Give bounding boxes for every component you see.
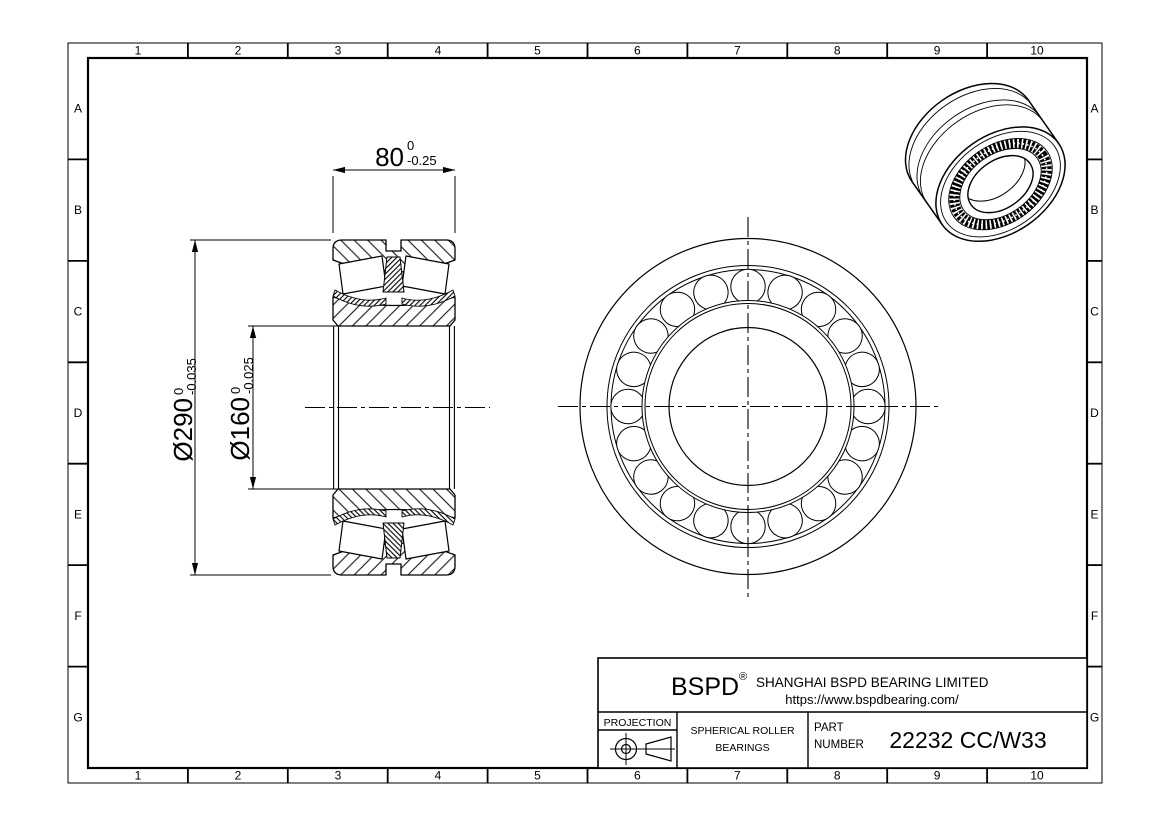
registered-mark: ®	[739, 671, 747, 683]
grid-label: 8	[834, 769, 841, 783]
grid-label: 7	[734, 769, 741, 783]
drawing-sheet: 1 2 3 4 5 6 7 8 9 10 1 2 3 4 5 6 7 8 9 1…	[0, 0, 1169, 826]
grid-label: G	[73, 710, 82, 724]
grid-label: 4	[435, 769, 442, 783]
grid-label: 5	[534, 769, 541, 783]
grid-label: C	[74, 305, 83, 319]
dim-width: 80 0 -0.25	[333, 138, 455, 233]
dim-width-tol-lower: -0.25	[407, 153, 437, 168]
grid-label: 10	[1030, 769, 1044, 783]
product-type-line2: BEARINGS	[715, 742, 769, 754]
grid-label: D	[1090, 406, 1099, 420]
grid-label: 2	[235, 44, 242, 58]
grid-label: B	[74, 203, 82, 217]
section-view: 80 0 -0.25 Ø290 0 -0.035 Ø160	[168, 138, 490, 575]
title-block: BSPD ® SHANGHAI BSPD BEARING LIMITED htt…	[598, 658, 1087, 768]
part-number-value: 22232 CC/W33	[889, 727, 1046, 753]
grid-label: F	[1091, 609, 1098, 623]
grid-label: 7	[734, 44, 741, 58]
dim-od-value: Ø290	[168, 398, 198, 462]
grid-label: E	[74, 507, 82, 521]
grid-label: B	[1090, 203, 1098, 217]
brand-logo: BSPD	[671, 673, 739, 701]
grid-label: F	[74, 609, 81, 623]
front-view	[558, 217, 940, 597]
dim-bore-value: Ø160	[225, 397, 255, 461]
grid-label: 6	[634, 769, 641, 783]
grid-label: 3	[335, 769, 342, 783]
company-website: https://www.bspdbearing.com/	[785, 692, 959, 707]
company-name: SHANGHAI BSPD BEARING LIMITED	[756, 675, 989, 690]
drawing-canvas: 1 2 3 4 5 6 7 8 9 10 1 2 3 4 5 6 7 8 9 1…	[0, 0, 1169, 826]
dim-width-tol-upper: 0	[407, 138, 414, 153]
guide-ring-section	[383, 257, 404, 292]
part-label-line1: PART	[814, 722, 844, 734]
grid-label: 5	[534, 44, 541, 58]
dim-width-value: 80	[375, 142, 404, 172]
grid-label: 6	[634, 44, 641, 58]
grid-label: 1	[135, 769, 142, 783]
grid-label: 10	[1030, 44, 1044, 58]
grid-label: D	[74, 406, 83, 420]
dim-bore-tol-lower: -0.025	[241, 357, 256, 394]
grid-label: G	[1090, 710, 1099, 724]
projection-label: PROJECTION	[604, 717, 672, 729]
grid-label: 9	[934, 769, 941, 783]
grid-label: 2	[235, 769, 242, 783]
grid-label: C	[1090, 305, 1099, 319]
dim-od-tol-lower: -0.035	[184, 358, 199, 395]
grid-label: 8	[834, 44, 841, 58]
grid-label: E	[1090, 507, 1098, 521]
grid-label: 1	[135, 44, 142, 58]
grid-label: A	[1090, 102, 1098, 116]
grid-label: 4	[435, 44, 442, 58]
grid-label: 3	[335, 44, 342, 58]
product-type-line1: SPHERICAL ROLLER	[690, 725, 794, 737]
part-label-line2: NUMBER	[814, 739, 864, 751]
isometric-view	[884, 60, 1087, 265]
grid-label: 9	[934, 44, 941, 58]
grid-label: A	[74, 102, 82, 116]
